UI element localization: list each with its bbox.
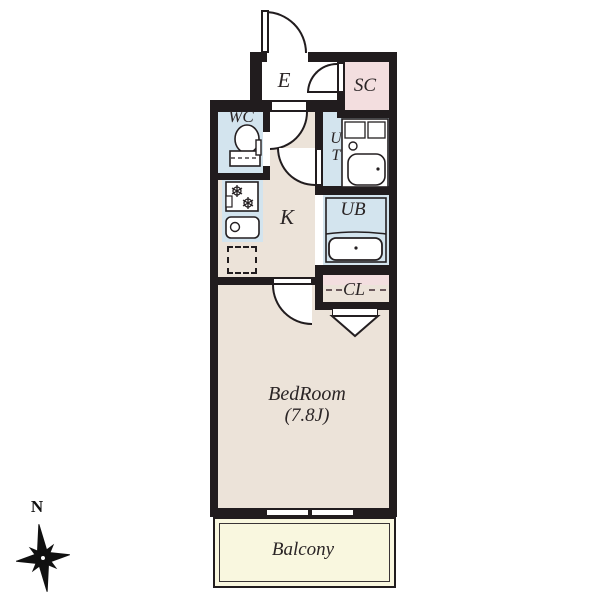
balcony-window-right — [310, 508, 355, 517]
wall-segment — [210, 100, 218, 517]
wall-segment — [250, 60, 262, 102]
kitchen-stove-and-sink — [224, 180, 262, 240]
shoe-closet-door-leaf — [337, 62, 345, 93]
wall-segment — [263, 112, 270, 132]
kitchen-label: K — [267, 206, 307, 228]
bedroom-label: BedRoom (7.8J) — [227, 384, 387, 426]
wall-segment — [389, 52, 397, 517]
unit-bath-label: UB — [333, 200, 373, 220]
hall-door-leaf — [270, 100, 308, 112]
wall-segment — [210, 173, 270, 180]
closet-label: CL — [334, 280, 374, 299]
bedroom-door-leaf — [272, 277, 313, 285]
utility-label: U T — [321, 131, 351, 165]
wall-segment — [315, 265, 397, 275]
compass-north-label: N — [22, 498, 52, 516]
wall-segment — [308, 52, 397, 62]
fridge-space — [227, 246, 257, 274]
wall-segment — [218, 277, 272, 285]
wall-segment — [263, 166, 270, 173]
wall-segment — [210, 508, 265, 517]
floor-plan: E SC WC U T UB K CL BedRoom (7.8J) Balco… — [0, 0, 600, 600]
wc-door-opening — [263, 132, 270, 166]
bedroom-name: BedRoom — [268, 383, 346, 405]
utility-label-u: U — [330, 130, 342, 147]
entrance-door-swing-arc — [265, 11, 307, 53]
entrance-label: E — [264, 69, 304, 91]
bedroom-size: (7.8J) — [285, 405, 330, 426]
balcony-label: Balcony — [243, 540, 363, 560]
wall-segment — [313, 277, 323, 285]
wall-segment — [355, 508, 397, 517]
entrance-door-leaf — [261, 10, 269, 53]
compass-rose-icon — [8, 523, 78, 593]
wall-segment — [337, 110, 397, 118]
toilet-label: WC — [221, 108, 261, 126]
wall-segment — [337, 91, 345, 112]
shoe-closet-label: SC — [345, 76, 385, 96]
closet-folding-door — [330, 314, 380, 338]
balcony-window-left — [265, 508, 310, 517]
utility-label-t: T — [332, 147, 341, 164]
